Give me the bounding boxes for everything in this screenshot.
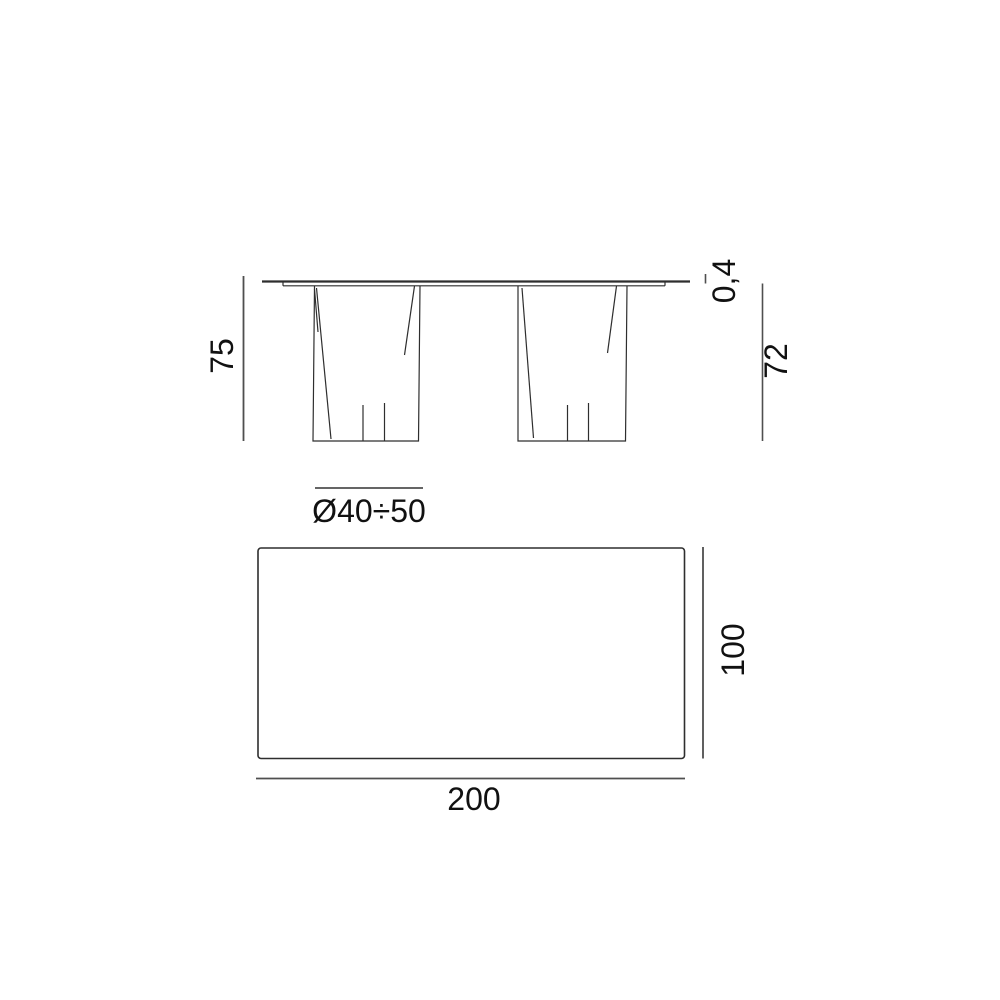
leg-left-grain-line-right — [405, 286, 415, 355]
leg-left-grain-line-long — [317, 288, 332, 439]
dim-label-depth-100: 100 — [716, 623, 750, 676]
dim-label-leg-diameter: Ø40÷50 — [312, 494, 426, 528]
dim-label-height-75: 75 — [205, 338, 239, 374]
dim-label-top-thickness: 0,4 — [707, 259, 741, 303]
dim-label-height-72: 72 — [759, 343, 793, 379]
top-plan-view — [256, 547, 703, 779]
tabletop-edge-profile — [262, 282, 690, 286]
elevation-dimension-lines — [244, 274, 763, 488]
side-elevation-view — [244, 274, 763, 488]
tabletop-plan-outline — [258, 548, 685, 759]
table-leg-right — [518, 286, 627, 441]
leg-right-grain-line-right — [608, 286, 617, 353]
leg-right-outline — [518, 286, 627, 441]
technical-drawing-canvas — [0, 0, 1000, 1000]
plan-dimension-lines — [256, 547, 703, 779]
technical-drawing-page: 75 0,4 72 Ø40÷50 100 200 — [0, 0, 1000, 1000]
dim-label-width-200: 200 — [447, 782, 500, 816]
leg-right-grain-line-long — [522, 288, 534, 438]
table-leg-left — [313, 286, 420, 441]
